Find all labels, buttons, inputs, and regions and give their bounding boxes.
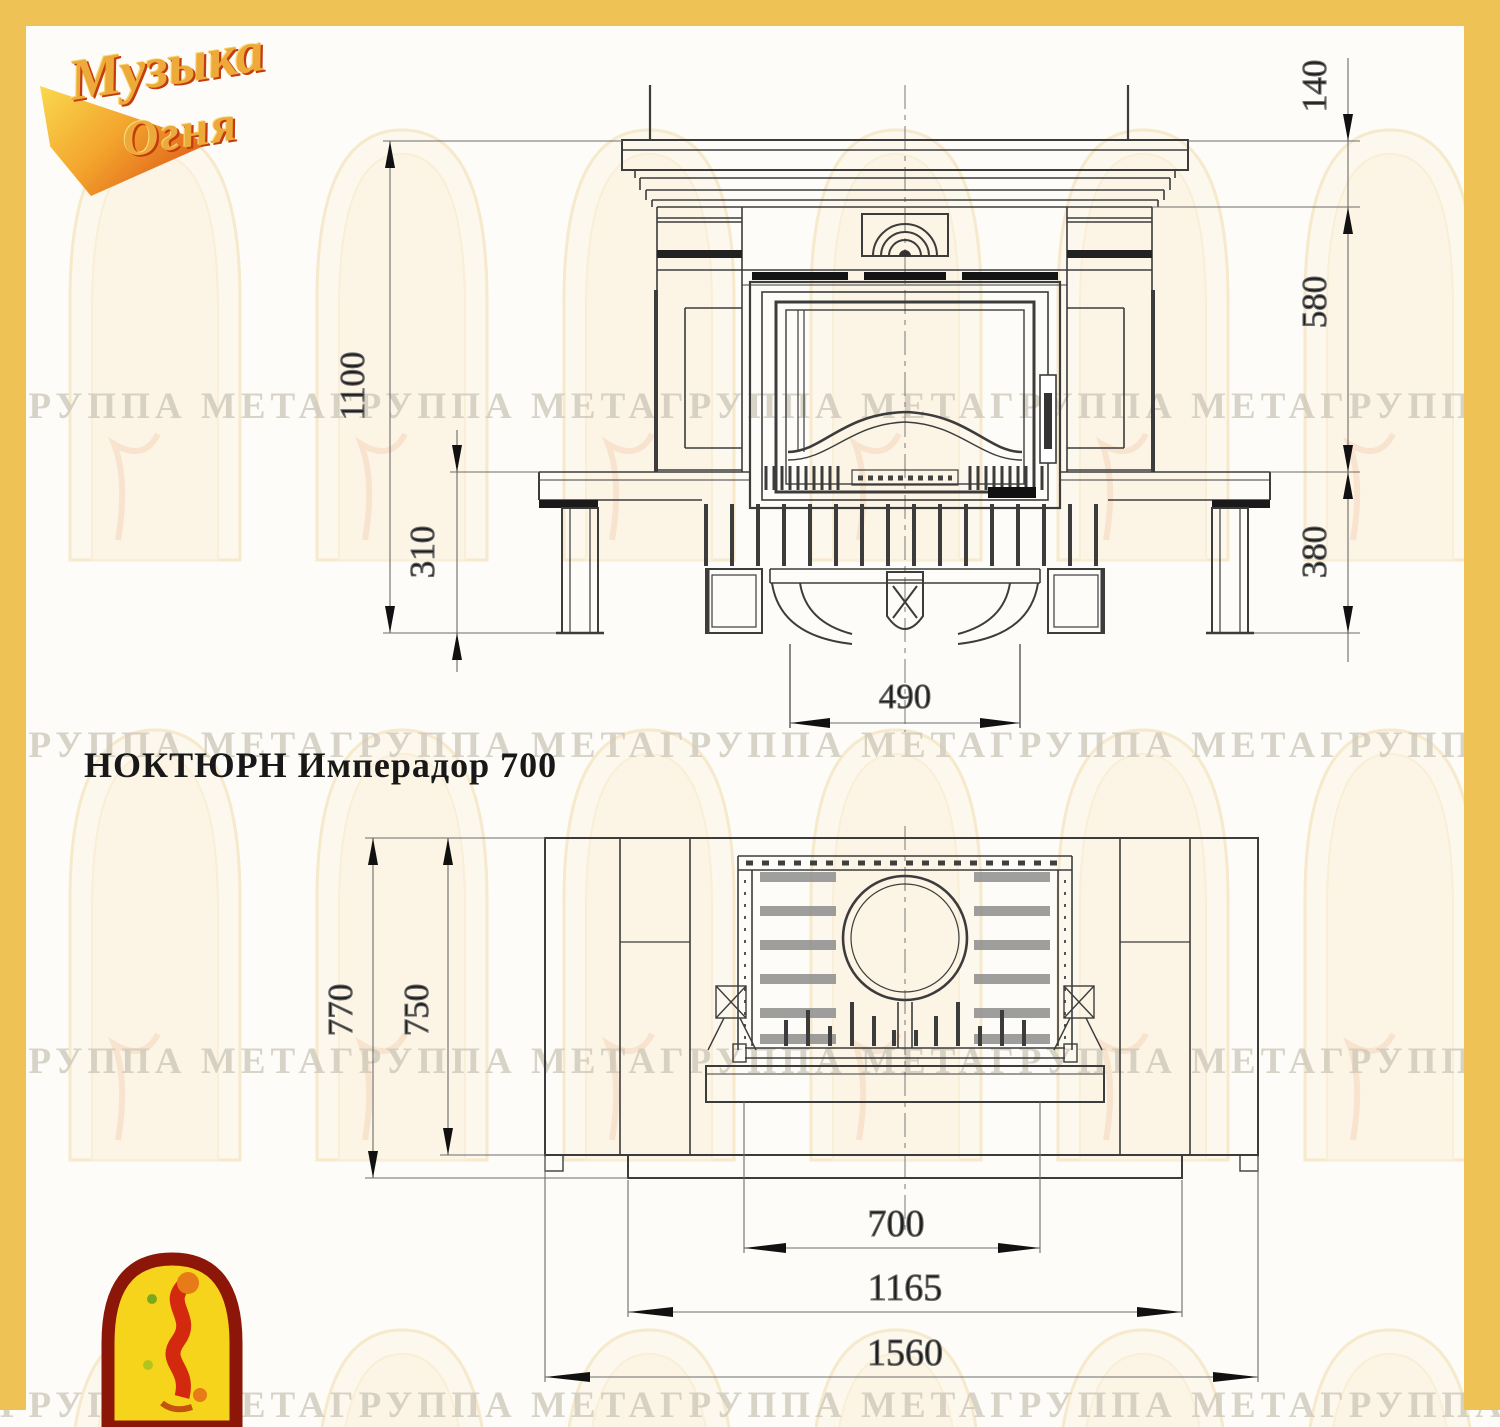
right-base-block	[1048, 569, 1104, 633]
brand-logo: Музыка Огня	[26, 24, 326, 194]
page-border-right	[1464, 0, 1500, 1410]
front-elevation-view	[539, 85, 1270, 732]
chimney-break-lines	[650, 85, 1128, 140]
front-view-dimensions: 1100 310 140 580 380 490	[333, 58, 1360, 728]
dim-plan-total-depth: 770	[321, 984, 360, 1037]
dim-plan-firebox-width: 700	[868, 1203, 925, 1245]
drawing-title: НОКТЮРН Имперадор 700	[84, 744, 557, 786]
logo-text-line1: Музыка	[64, 17, 268, 114]
logo-text-line2: Огня	[118, 93, 242, 168]
right-column	[1067, 270, 1153, 472]
right-outer-leg	[1206, 508, 1254, 633]
page-border-left	[0, 0, 26, 1410]
dim-plan-inner-width: 1165	[868, 1267, 943, 1309]
dim-front-shelf-height: 140	[1295, 60, 1334, 113]
left-base-block	[706, 569, 762, 633]
fireplace-technical-drawing: 1100 310 140 580 380 490	[0, 0, 1500, 1427]
base-slat-row	[706, 504, 1096, 566]
left-corner-fitting	[708, 986, 756, 1050]
right-corner-fitting	[1054, 986, 1102, 1050]
dim-plan-body-depth: 750	[397, 984, 436, 1037]
corner-emblem	[92, 1243, 252, 1427]
dim-front-base-height: 380	[1295, 526, 1334, 579]
door-latch	[988, 487, 1036, 498]
left-column	[656, 270, 742, 472]
door-handle	[1040, 375, 1056, 463]
dim-front-firebox-height: 580	[1295, 276, 1334, 329]
plan-outer-body	[545, 838, 1258, 1178]
left-outer-leg	[556, 508, 604, 633]
firebox-top-strip	[752, 272, 1058, 280]
dim-front-total-height: 1100	[333, 352, 372, 421]
plan-view-dimensions: 770 750 700 1165 1560	[321, 838, 1258, 1382]
plan-view	[545, 826, 1258, 1235]
dim-front-plinth-height: 310	[403, 526, 442, 579]
dim-plan-total-width: 1560	[867, 1332, 943, 1374]
dim-front-ash-width: 490	[879, 677, 932, 716]
